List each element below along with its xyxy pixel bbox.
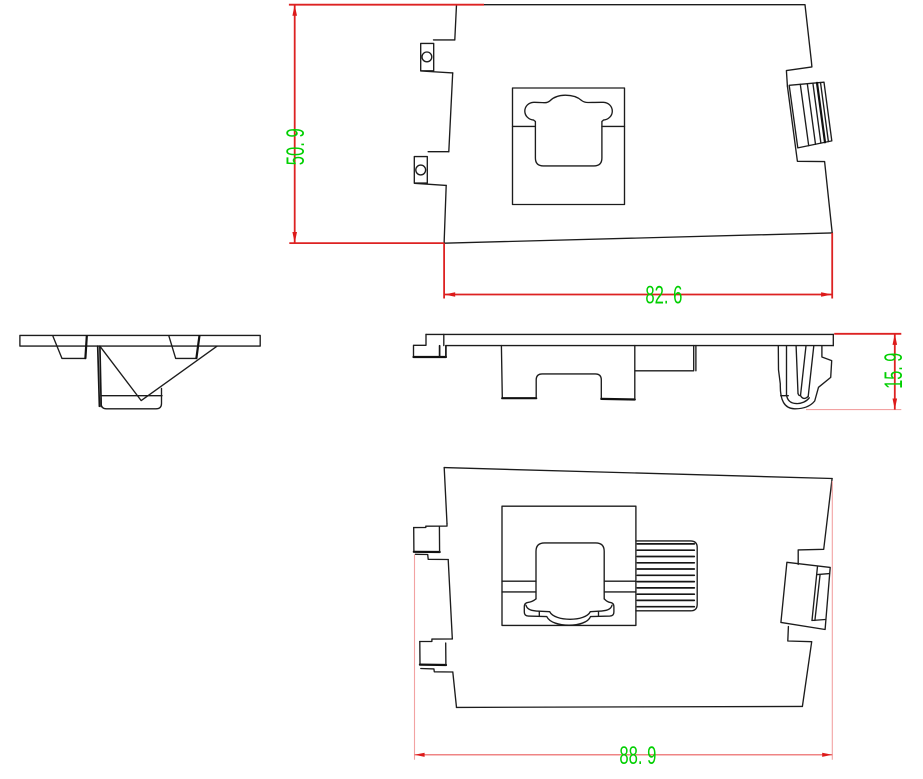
svg-text:82. 6: 82. 6: [645, 282, 682, 310]
svg-text:50. 9: 50. 9: [282, 128, 310, 165]
svg-text:88. 9: 88. 9: [619, 742, 656, 770]
svg-text:15. 9: 15. 9: [880, 353, 908, 389]
